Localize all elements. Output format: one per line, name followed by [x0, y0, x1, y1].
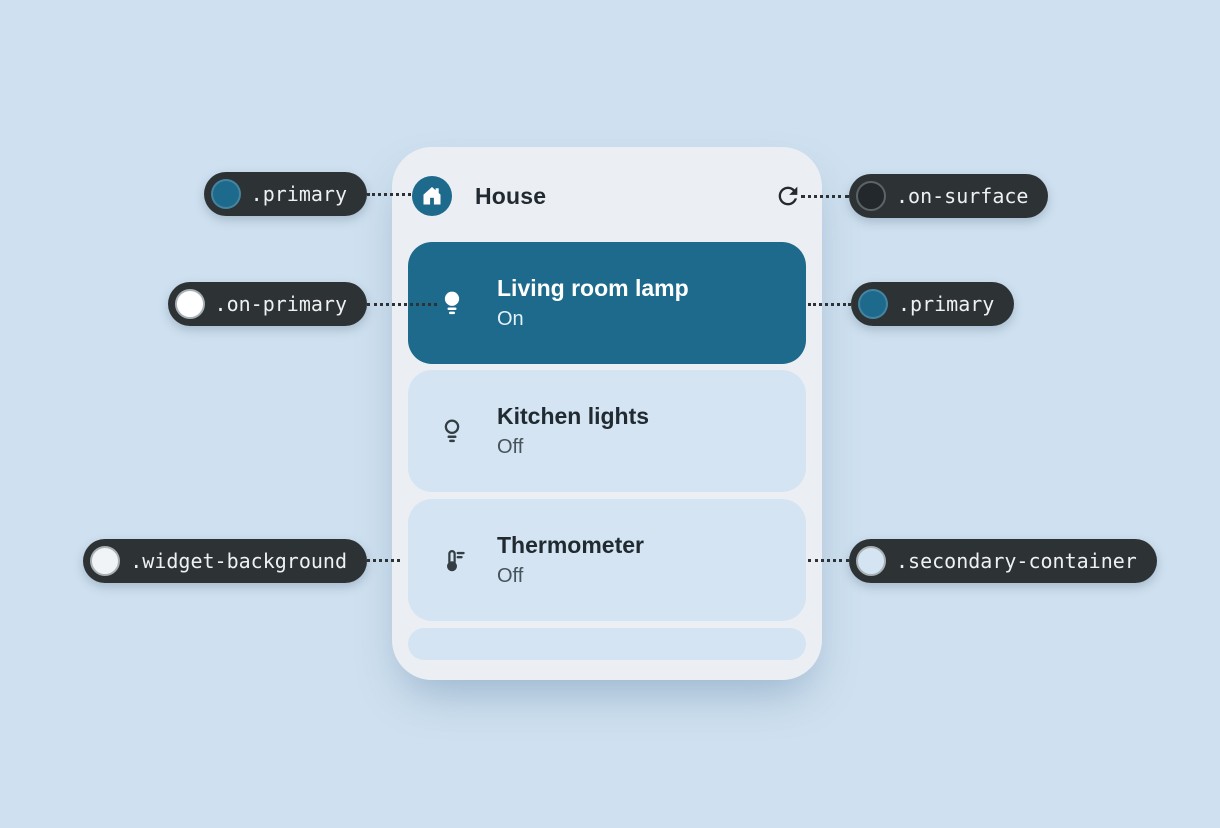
partial-device-row — [408, 628, 806, 660]
color-swatch — [90, 546, 120, 576]
lightbulb-filled-icon — [437, 288, 467, 318]
device-status: Off — [497, 436, 649, 458]
widget-title: House — [475, 183, 546, 210]
home-icon — [412, 176, 452, 216]
color-swatch — [211, 179, 241, 209]
color-swatch — [858, 289, 888, 319]
callout-label: .on-primary — [215, 294, 347, 314]
thermometer-icon — [437, 545, 467, 575]
device-name: Thermometer — [497, 533, 644, 558]
callout-label: .on-surface — [896, 186, 1028, 206]
callout-label: .secondary-container — [896, 551, 1137, 571]
callout-on-primary: .on-primary — [168, 282, 367, 326]
canvas: House Living room lamp On — [0, 0, 1220, 828]
connector-primary-right — [808, 303, 851, 306]
callout-secondary-container: .secondary-container — [849, 539, 1157, 583]
callout-widget-background: .widget-background — [83, 539, 367, 583]
widget-card: House Living room lamp On — [392, 147, 822, 680]
color-swatch — [175, 289, 205, 319]
device-row-thermometer[interactable]: Thermometer Off — [408, 499, 806, 621]
lightbulb-outline-icon — [437, 416, 467, 446]
callout-label: .primary — [898, 294, 994, 314]
callout-label: .primary — [251, 184, 347, 204]
connector-on-primary — [367, 303, 437, 306]
callout-on-surface: .on-surface — [849, 174, 1048, 218]
connector-on-surface — [801, 195, 849, 198]
device-row-living-room-lamp[interactable]: Living room lamp On — [408, 242, 806, 364]
connector-secondary-container — [808, 559, 849, 562]
callout-label: .widget-background — [130, 551, 347, 571]
refresh-icon[interactable] — [774, 182, 802, 210]
color-swatch — [856, 181, 886, 211]
connector-primary-left — [367, 193, 411, 196]
callout-primary-right: .primary — [851, 282, 1014, 326]
widget-header: House — [392, 147, 822, 245]
device-row-kitchen-lights[interactable]: Kitchen lights Off — [408, 370, 806, 492]
connector-widget-background — [367, 559, 400, 562]
widget-header-left: House — [412, 176, 774, 216]
device-name: Living room lamp — [497, 276, 689, 301]
device-status: On — [497, 308, 689, 330]
color-swatch — [856, 546, 886, 576]
callout-primary-left: .primary — [204, 172, 367, 216]
device-name: Kitchen lights — [497, 404, 649, 429]
device-status: Off — [497, 565, 644, 587]
